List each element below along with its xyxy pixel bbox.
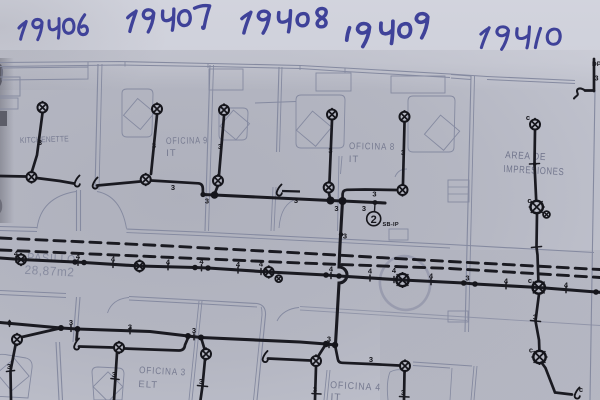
svg-text:3: 3 [152,141,156,150]
svg-text:3: 3 [38,138,42,147]
svg-text:IT: IT [330,392,341,400]
svg-text:ELT: ELT [138,379,158,391]
svg-text:3: 3 [343,232,347,241]
svg-text:3: 3 [401,388,405,397]
svg-text:DP: DP [592,61,600,68]
svg-text:IT: IT [166,148,177,159]
svg-text:3: 3 [313,385,317,394]
svg-text:c: c [526,113,530,122]
svg-text:3: 3 [128,323,132,332]
svg-text:3: 3 [594,74,598,83]
svg-text:3: 3 [7,319,11,328]
svg-text:3: 3 [372,190,376,199]
svg-text:3: 3 [362,204,366,213]
svg-text:3: 3 [334,204,338,213]
svg-text:3: 3 [294,196,298,205]
svg-text:3: 3 [401,148,405,157]
svg-text:3: 3 [199,377,203,386]
svg-text:3: 3 [69,318,73,327]
svg-text:3: 3 [327,335,331,344]
svg-text:3: 3 [369,355,373,364]
svg-text:KITCHENETTE: KITCHENETTE [20,134,70,145]
svg-text:3: 3 [533,313,537,322]
svg-text:2: 2 [371,214,377,226]
svg-text:OFICINA 8: OFICINA 8 [349,141,395,153]
svg-text:3: 3 [192,326,196,335]
svg-text:3: 3 [112,370,116,379]
svg-text:3: 3 [171,183,175,192]
svg-text:3: 3 [7,362,11,371]
svg-text:AREA DE: AREA DE [505,150,547,163]
svg-text:28,87m2: 28,87m2 [24,263,75,280]
svg-text:c: c [528,276,532,285]
svg-text:c: c [529,346,533,355]
svg-text:c: c [579,385,583,394]
svg-text:OFICINA 9: OFICINA 9 [166,135,208,147]
svg-text:SB-IP: SB-IP [383,222,399,228]
svg-text:3: 3 [465,274,469,283]
svg-text:3: 3 [218,142,222,151]
svg-text:c: c [527,196,531,205]
svg-text:3: 3 [328,146,332,155]
svg-text:IT: IT [349,154,360,165]
svg-text:3: 3 [205,197,209,206]
